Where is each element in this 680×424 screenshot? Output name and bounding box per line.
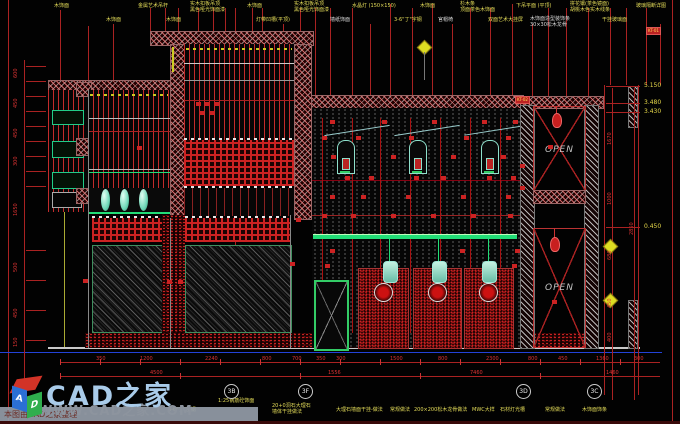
logo-cube-left: A <box>12 386 27 413</box>
pendant-lamp <box>432 261 447 283</box>
dim-ticks <box>26 66 46 198</box>
dimension-value: 2850 <box>629 222 635 235</box>
annotation-label: 常规做法 <box>545 407 565 413</box>
leader-line <box>330 8 331 108</box>
basin-circle <box>479 283 498 302</box>
joint-line <box>312 215 522 216</box>
elevation-tick: 0.450 <box>606 227 640 228</box>
dimension-value: 450 <box>13 128 19 138</box>
dimension-value: 800 <box>528 356 538 362</box>
dimension-value: 7460 <box>470 370 483 376</box>
annotation-label: 1:25钢筋砼饰面 <box>218 398 254 404</box>
leader-line <box>150 8 151 33</box>
elevation-tick: 3.430 <box>606 112 640 113</box>
dim-chain-right <box>634 88 635 400</box>
tower-lattice <box>184 140 294 186</box>
shelf-line <box>88 169 170 170</box>
leader-line <box>60 10 61 82</box>
annotation-label: 木饰面 <box>54 3 69 9</box>
dimension-value: 680 <box>607 250 613 260</box>
dimension-value: 350 <box>96 356 106 362</box>
leader-line <box>588 8 589 105</box>
border-line-right <box>672 0 673 424</box>
leader-line <box>315 8 316 95</box>
dimension-value: 2300 <box>486 356 499 362</box>
logo-cube-right: D <box>27 392 42 419</box>
dimension-value: 450 <box>558 356 568 362</box>
wall-hatch <box>628 300 638 349</box>
grid-bubble: 3C <box>587 384 602 399</box>
ground-datum-blue-line <box>0 352 662 353</box>
elevation-value: 0.450 <box>644 223 661 230</box>
grid-bubble: 3D <box>516 384 531 399</box>
elevation-tick: 3.480 <box>606 103 640 104</box>
dimension-value: 1460 <box>606 370 619 376</box>
annotation-label: 水晶灯 (150×150) <box>352 3 396 9</box>
elevation-value: 3.430 <box>644 108 661 115</box>
panel-edge <box>170 218 171 348</box>
tower-top-trim <box>186 48 292 50</box>
dimension-value: 1670 <box>607 132 613 145</box>
dimension-value: 450 <box>13 308 19 318</box>
hanging-lamp <box>550 237 560 252</box>
annotation-label: 金属艺术吊杆 <box>138 3 168 9</box>
dimension-value: 1650 <box>13 203 19 216</box>
grid-bubble: 3F <box>298 384 313 399</box>
grid-bubble: 3B <box>224 384 239 399</box>
leader-line <box>490 8 491 108</box>
detail-tag: KT-02 <box>515 96 530 104</box>
dimension-value: 150 <box>13 337 19 347</box>
leader-line <box>412 8 413 108</box>
basin-circle <box>428 283 447 302</box>
annotation-label: 木饰面饰条 <box>582 407 607 413</box>
vase-decor <box>101 189 110 211</box>
elevation-value: 3.480 <box>644 99 661 106</box>
tower-pilaster <box>294 44 312 220</box>
dimension-value: 300 <box>13 156 19 166</box>
tower-lower-screen <box>184 188 294 216</box>
tower-light-strip <box>172 47 174 72</box>
wall-edge-line <box>604 85 605 395</box>
annotation-label: 拼花镶(茶色镜面) 胡桃木色实木线条 <box>570 1 610 13</box>
dimension-value: 1556 <box>328 370 341 376</box>
shelf-line <box>88 131 170 132</box>
wall-inset-panel <box>52 110 84 125</box>
tower-rail-line <box>184 100 294 101</box>
annotation-label: MWC大样 <box>472 407 495 413</box>
tower-rail-line <box>184 80 294 81</box>
slat-top-trim <box>90 94 168 96</box>
tower-rail-line <box>184 63 294 64</box>
dimension-value: 450 <box>13 98 19 108</box>
dimension-value: 350 <box>316 356 326 362</box>
wall-inset-panel <box>52 172 84 189</box>
dimension-value: 1200 <box>140 356 153 362</box>
open-label: OPEN <box>534 283 585 293</box>
annotation-label: 石材灯光槽 <box>500 407 525 413</box>
annotation-label: 玻璃隔断详图 <box>636 3 666 9</box>
dimension-value: 800 <box>438 356 448 362</box>
annotation-label: 常规做法 <box>390 407 410 413</box>
dimension-value: 300 <box>634 356 644 362</box>
vase-decor <box>120 189 129 211</box>
annotation-label: 木饰面 <box>420 3 435 9</box>
elevation-tick: 5.150 <box>606 86 640 87</box>
detail-tag: KT-01 <box>646 27 661 35</box>
counter-top <box>313 234 517 239</box>
lamp-niche <box>409 140 427 174</box>
panel-diagonal-hatch <box>185 245 292 333</box>
wall-hatch <box>628 86 638 128</box>
basin-circle <box>374 283 393 302</box>
annotation-label: 干挂玻璃面 <box>602 17 627 23</box>
annotation-label: 官帽椅 <box>438 17 453 23</box>
lamp-niche <box>481 140 499 174</box>
dimension-value: 1000 <box>607 192 613 205</box>
annotation-label: 3-6"丁"字钢 <box>394 17 422 23</box>
panel-lattice-top <box>185 218 290 242</box>
beam-hatch <box>533 190 586 204</box>
pendant-lamp <box>482 261 497 283</box>
leader-line <box>432 4 433 108</box>
dimension-value: 500 <box>13 262 19 272</box>
panel-lattice-top <box>92 218 162 242</box>
leader-line <box>646 8 647 85</box>
wall-edge-line <box>638 85 639 395</box>
lamp-stem <box>488 238 489 263</box>
annotation-label: 200×200松木龙骨做法 <box>414 407 467 413</box>
annotation-label: 木饰面 <box>166 17 181 23</box>
elevation-value: 5.150 <box>644 82 661 89</box>
pendant-lamp <box>383 261 398 283</box>
annotation-label: 木饰面造型装饰条 30×30松木龙骨 <box>530 16 570 28</box>
leader-line <box>470 8 471 108</box>
tower-slat-screen <box>184 44 294 140</box>
slat-screen-panel <box>88 90 170 188</box>
joint-line <box>312 180 522 181</box>
cad-home-logo: A D <box>10 378 44 418</box>
leader-line <box>532 24 533 104</box>
annotation-label: 木饰面 <box>106 17 121 23</box>
annotation-label: 大理石墙面干挂-做法 <box>336 407 383 413</box>
panel-edge <box>290 215 291 348</box>
annotation-label: 实木扣板吊顶 黑色哑光饰面漆 <box>190 1 225 13</box>
lamp-niche <box>337 140 355 174</box>
shaft-wall-hatch <box>584 105 599 349</box>
shelf-line <box>88 118 170 119</box>
dimension-value: 700 <box>292 356 302 362</box>
panel-edge <box>88 90 89 348</box>
dimension-value: 1360 <box>596 356 609 362</box>
marker-dots <box>0 0 5 4</box>
annotation-label: 20+0洞石大理石 墙体干挂做法 <box>272 403 311 415</box>
dim-ticks <box>26 250 46 350</box>
lamp-stem <box>438 238 439 263</box>
dimension-value: 800 <box>262 356 272 362</box>
dimension-value: 1500 <box>390 356 403 362</box>
annotation-label: 木饰面 <box>247 3 262 9</box>
annotation-label: 实木扣板吊顶 黑色哑光饰面漆 <box>294 1 329 13</box>
hanging-lamp <box>552 113 562 128</box>
leader-line <box>225 8 226 33</box>
stone-column <box>162 215 185 348</box>
annotation-label: 杉木条 顶面茶色木饰面 <box>460 1 495 13</box>
door-panel <box>314 280 349 351</box>
reference-line <box>64 212 65 347</box>
dimension-value: 2240 <box>205 356 218 362</box>
cad-viewport[interactable]: OPEN OPEN 木饰面金属艺术吊杆实木扣板吊顶 黑色哑光饰面漆木饰面实木扣板… <box>0 0 680 424</box>
dimension-value: 400 <box>607 332 613 342</box>
section-marker-stem <box>424 52 425 80</box>
open-label: OPEN <box>534 145 585 155</box>
watermark-brand: CAD之家 <box>46 374 173 413</box>
border-line-left <box>8 0 9 424</box>
dimension-value: 450 <box>607 298 613 308</box>
annotation-label: 墙纸饰面 <box>330 17 350 23</box>
shelf-green-edge <box>88 212 170 214</box>
dimension-value: 600 <box>13 68 19 78</box>
leader-line <box>352 8 353 108</box>
lamp-stem <box>389 238 390 263</box>
dim-chain-left <box>24 60 25 396</box>
annotation-label: 双面艺术大挂屏 <box>488 17 523 23</box>
shelf-line <box>88 172 170 173</box>
annotation-label: 灯带凹槽(平顶) <box>256 17 290 23</box>
annotation-label: 下吊平面 (平顶) <box>516 3 552 9</box>
panel-diagonal-hatch <box>92 245 164 333</box>
vase-decor <box>139 189 148 211</box>
dimension-value: 300 <box>336 356 346 362</box>
